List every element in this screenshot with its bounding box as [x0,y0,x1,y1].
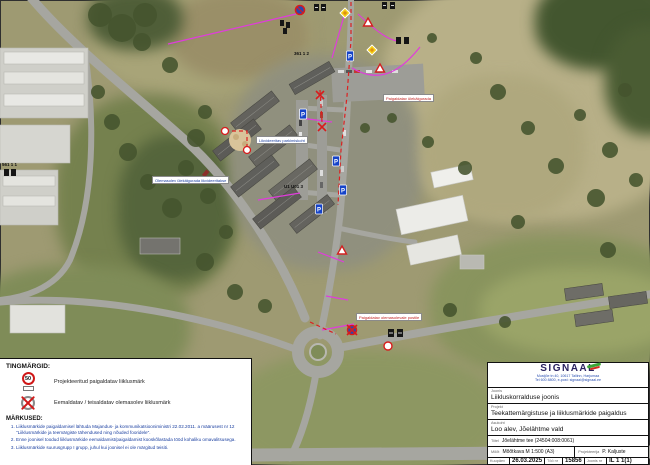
industrial-buildings [396,164,484,269]
designer-value: P. Kaljuste [602,449,625,455]
legend-item-new-sign: 50 Projekteeritud paigaldatav liiklusmär… [16,373,245,390]
company-contact: Tel 600 8800, e-post: signaal@signaal.ee [488,378,648,382]
legend-item-label: Eemaldatav / teisaldatav olemasolev liik… [54,400,170,406]
legend-item-label: Projekteeritud paigaldatav liiklusmärk [54,379,145,385]
svg-text:P: P [301,112,305,118]
drawing-name-row: Joonis Liikluskorralduse joonis [488,388,648,404]
work-number-value: 15856 [565,458,582,464]
row-value: Loo alev, Jõelähtme vald [491,426,645,434]
speed-limit-50-sign-icon: 50 [16,372,40,391]
notes-heading: MÄRKUSED: [6,416,245,422]
work-number-label: Töö nr [547,459,558,463]
sign-plate [23,386,34,391]
svg-text:P: P [341,188,345,194]
legend-item-removed-sign: Eemaldatav / teisaldatav olemasolev liik… [16,394,245,411]
row-value: Liikluskorralduse joonis [491,394,645,402]
project-row: Projekt Teekattemärgistuse ja liiklusmär… [488,404,648,420]
title-block: SIGNAAL Mustjõe tn 40, 10617 Tallinn, Ha… [487,362,649,465]
trees [88,3,643,328]
company-name: SIGNAAL [488,364,648,374]
row-value: Teekattemärgistuse ja liiklusmärkide pai… [491,410,645,418]
map-annotation-label: Likvideeritav parkimiskoht [256,136,308,144]
note-item: Enne joonisel toodud liiklusmärkide eema… [16,437,248,443]
row-value: Jõelähtme tee (24504:008:0061) [502,438,574,444]
map-annotation-label: Olemasolev ülekäigurada likvideeritakse [152,176,229,184]
speed-limit-value: 50 [22,372,35,385]
svg-text:P: P [348,54,352,60]
removed-sign-icon [16,396,40,410]
scale-label: Mõõt [491,450,499,454]
location-row: Asukoht Loo alev, Jõelähtme vald [488,420,648,436]
legend-heading: TINGMÄRGID: [6,363,245,370]
title-row: Tiitel Jõelähtme tee (24504:008:0061) [488,436,648,447]
company-header: SIGNAAL Mustjõe tn 40, 10617 Tallinn, Ha… [488,363,648,388]
row-label: Tiitel [491,439,499,443]
designer-label: Projekteerija [578,450,599,454]
sign-id: 561 1 1 [2,162,18,167]
note-item: Liiklusmärkide suurusgrupp I grupp, juhu… [16,445,248,451]
notes-list: Liiklusmärkide paigaldamisel lähtuda Maj… [6,424,248,450]
footer-row: Kuupäev 26.03.2025 Töö nr 15856 Joonis n… [488,458,648,464]
no-stopping-sign-icon [296,6,305,15]
date-label: Kuupäev [490,459,505,463]
parking-lots [296,64,425,213]
sign-id: 361 1 2 [294,51,310,56]
sign-id: U1 U01 3 [284,184,304,189]
scale-value: Mõõtkava M 1:500 (A3) [502,449,554,455]
map-annotation-label: Paigaldatav ülekäigurada [383,94,434,102]
traffic-plan-sheet: P P P P P 561 1 1 361 1 2 [0,0,650,465]
sheet-number-value: IL 1 1(1) [609,458,632,464]
legend-panel: TINGMÄRGID: 50 Projekteeritud paigaldata… [0,358,252,465]
map-annotation-label: Paigaldatav olemasolevale postile [356,313,422,321]
svg-text:P: P [317,207,321,213]
roundabout [298,332,338,372]
scale-designer-row: Mõõt Mõõtkava M 1:500 (A3) Projekteerija… [488,447,648,458]
svg-text:P: P [334,159,338,165]
date-value: 26.03.2025 [512,458,542,464]
note-item: Liiklusmärkide paigaldamisel lähtuda Maj… [16,424,248,435]
signaal-logo-swoosh-icon [584,364,604,370]
sheet-number-label: Joonis nr [587,459,602,463]
